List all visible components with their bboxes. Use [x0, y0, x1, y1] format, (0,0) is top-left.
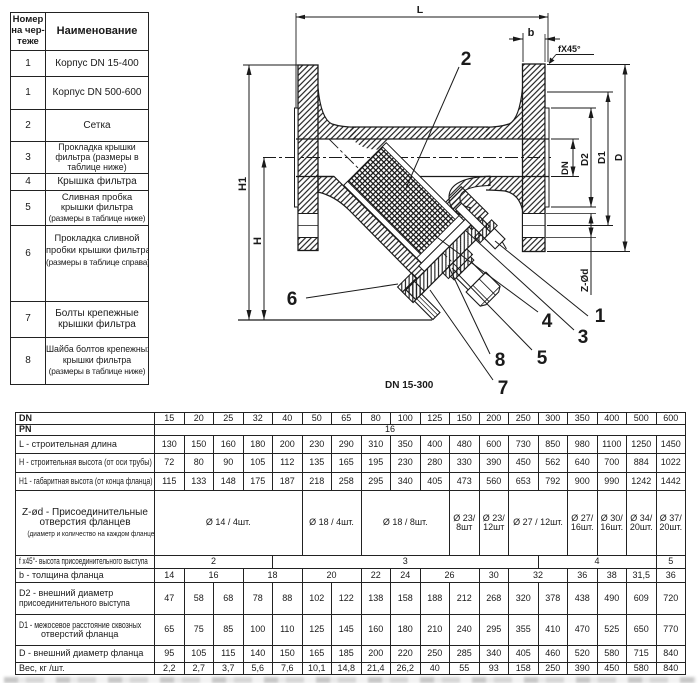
svg-text:Z-Ød: Z-Ød	[580, 269, 591, 292]
svg-text:8: 8	[495, 350, 506, 371]
svg-text:D: D	[614, 154, 625, 161]
svg-text:1: 1	[595, 306, 606, 327]
svg-text:2: 2	[461, 49, 472, 70]
svg-text:5: 5	[537, 348, 548, 369]
svg-text:3: 3	[578, 327, 589, 348]
svg-text:6: 6	[287, 289, 298, 310]
svg-text:D1: D1	[597, 151, 608, 164]
svg-text:fX45°: fX45°	[558, 44, 581, 54]
svg-text:H: H	[252, 237, 264, 245]
svg-text:b: b	[528, 27, 535, 39]
svg-text:4: 4	[542, 311, 553, 332]
svg-text:D2: D2	[580, 153, 591, 166]
svg-text:L: L	[417, 4, 424, 16]
svg-text:DN 15-300: DN 15-300	[385, 380, 434, 391]
svg-text:7: 7	[498, 378, 509, 399]
svg-text:H1: H1	[237, 177, 249, 191]
svg-text:DN: DN	[560, 161, 571, 175]
